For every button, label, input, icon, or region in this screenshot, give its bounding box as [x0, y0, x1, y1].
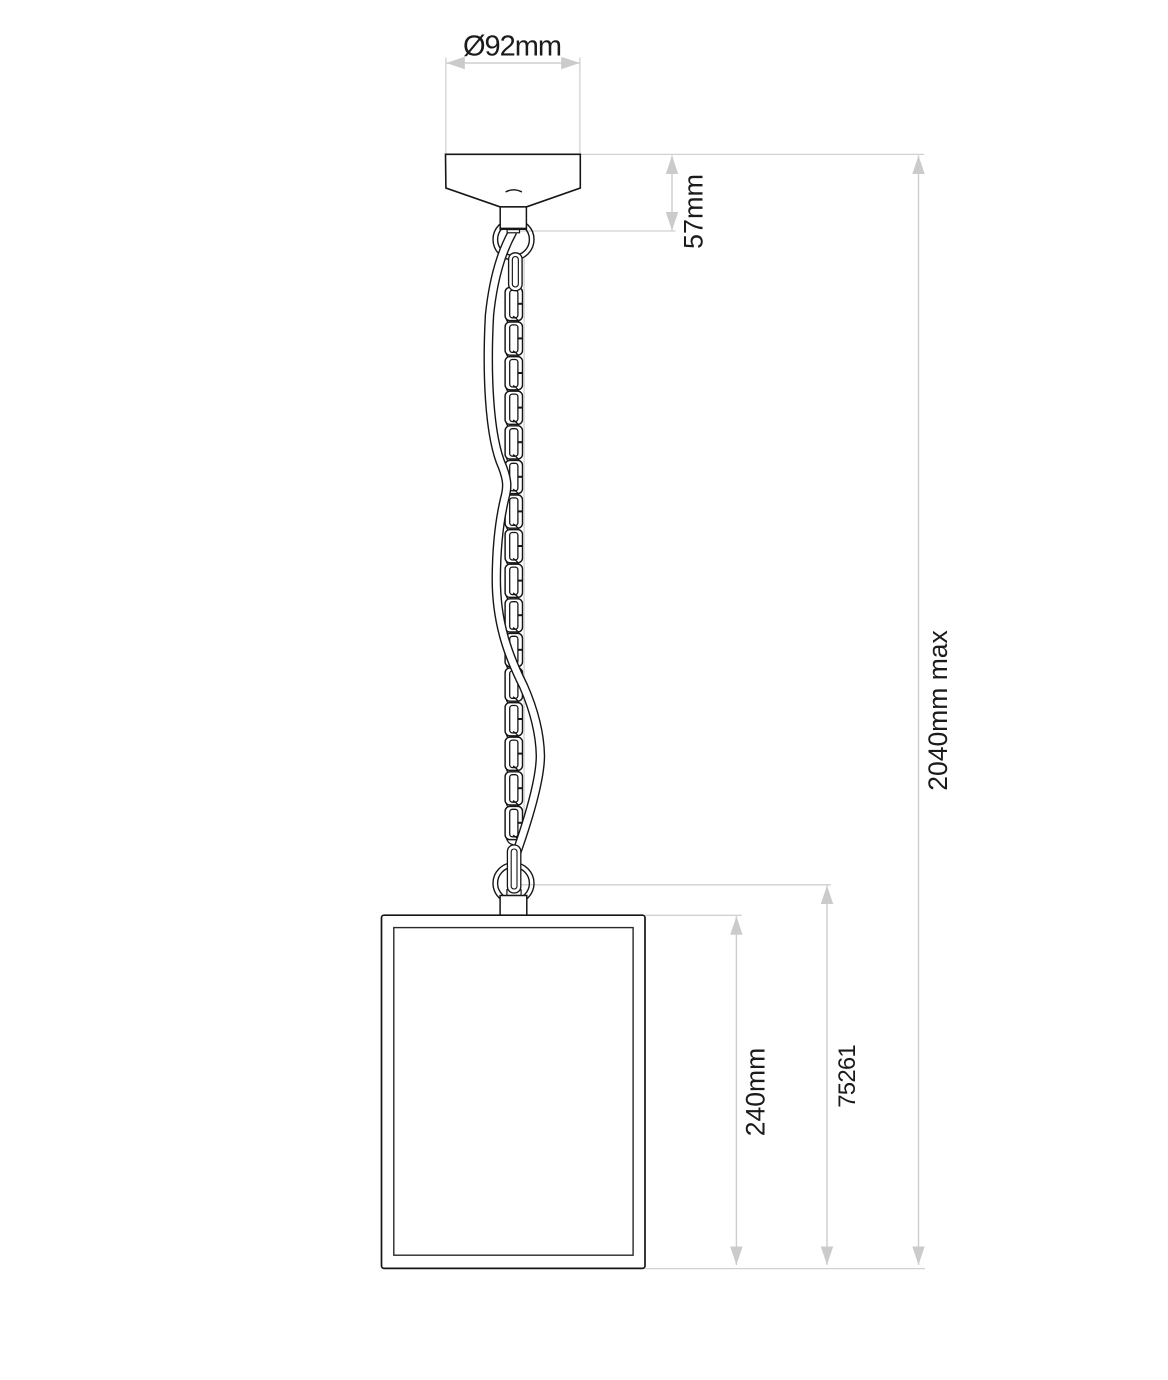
svg-text:240mm: 240mm	[741, 1048, 771, 1136]
svg-text:75261: 75261	[834, 1045, 861, 1108]
svg-text:57mm: 57mm	[679, 174, 709, 249]
svg-text:2040mm max: 2040mm max	[923, 630, 953, 791]
svg-text:Ø92mm: Ø92mm	[463, 31, 561, 63]
